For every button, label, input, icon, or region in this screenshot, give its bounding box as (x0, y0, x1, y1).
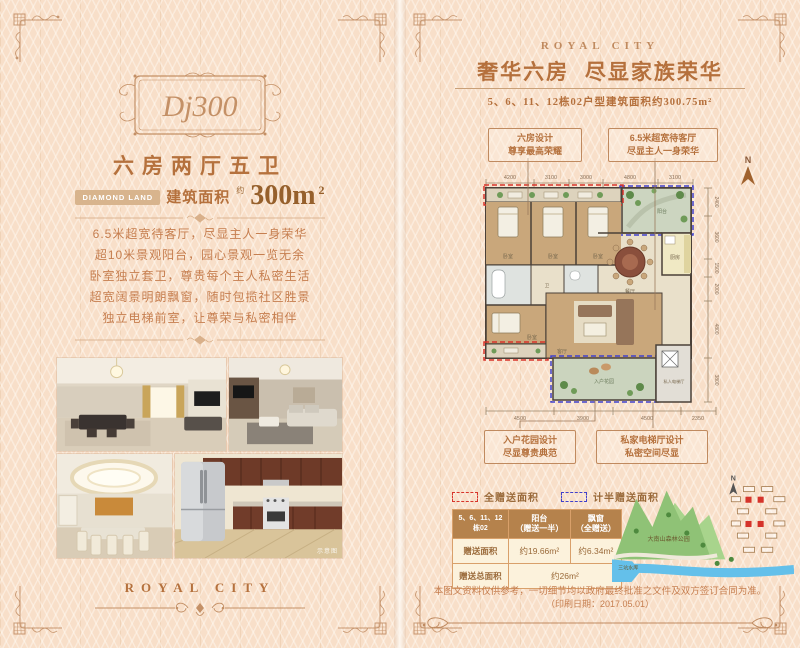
svg-text:2350: 2350 (692, 416, 704, 422)
kitchen-illustration (175, 454, 342, 558)
dimension-labels-right: 2400 3600 1500 2000 4800 3800 (713, 196, 719, 385)
brand-badge: DIAMOND LAND (75, 190, 160, 205)
svg-text:1500: 1500 (713, 262, 719, 273)
feature-line: 卧室独立套卫，尊贵每个主人私密生活 (0, 270, 400, 282)
callout-private-elevator: 私家电梯厅设计 私密空间尽显 (596, 430, 708, 464)
area-row: DIAMOND LAND 建筑面积 约 300m 2 (0, 182, 400, 210)
footer-brand: ROYAL CITY (0, 580, 400, 596)
feature-line: 超10米景观阳台，园心景观一览无余 (0, 249, 400, 261)
area-superscript: 2 (319, 183, 325, 198)
svg-text:2400: 2400 (713, 196, 719, 207)
svg-text:3800: 3800 (713, 374, 719, 385)
area-value: 300m (250, 182, 315, 210)
svg-text:4800: 4800 (624, 175, 636, 181)
map-park-label: 大南山森林公园 (647, 535, 689, 543)
blue-dashed-swatch (561, 492, 587, 502)
page-title: 六房两厅五卫 (0, 150, 400, 180)
red-dashed-swatch (452, 492, 478, 502)
feature-list: 6.5米超宽待客厅，尽显主人一身荣华 超10米景观阳台，园心景观一览无余 卧室独… (0, 228, 400, 333)
divider-ornament-icon (75, 333, 325, 347)
room-label-kitchen: 厨房 (670, 254, 680, 261)
title-rule (455, 88, 745, 89)
disclaimer: 本图文资料仅供参考，一切细节均以政府最终批准之文件及双方签订合同为准。 （印刷日… (400, 585, 800, 611)
divider-ornament-icon (75, 211, 325, 225)
callout-line: 私密空间尽显 (601, 447, 703, 460)
header-brand: ROYAL CITY (400, 40, 800, 52)
area-label: 建筑面积 (166, 186, 230, 207)
svg-text:N: N (745, 155, 752, 165)
map-north-arrow-icon: N (729, 476, 737, 495)
svg-text:2000: 2000 (713, 283, 719, 294)
table-header-unit: 5、6、11、12栋02 (453, 510, 509, 539)
dimension-line-right (704, 188, 712, 402)
table-row: 赠送面积 约19.66m² 约6.34m² (453, 539, 622, 564)
dj300-logo: Dj300 (115, 68, 285, 142)
map-buildings (731, 487, 785, 553)
legend-item-full-gift: 全赠送面积 (452, 489, 539, 504)
map-lake-label: 三坑水库 (618, 564, 638, 571)
svg-text:4200: 4200 (504, 175, 516, 181)
photo-watermark: 示意图 (317, 546, 338, 555)
disclaimer-line: （印刷日期：2017.05.01） (400, 598, 800, 611)
approx-mark: 约 (236, 185, 244, 196)
disclaimer-line: 本图文资料仅供参考，一切细节均以政府最终批准之文件及双方签订合同为准。 (400, 585, 800, 598)
north-arrow-icon: N (741, 155, 755, 185)
page-fold (394, 0, 406, 648)
feature-line: 超宽阔景明朗飘窗，随时包揽社区胜景 (0, 291, 400, 303)
svg-text:3100: 3100 (669, 175, 681, 181)
photo-dining-room (57, 454, 172, 558)
svg-text:3100: 3100 (545, 175, 557, 181)
dining-room-illustration (57, 454, 172, 558)
corner-ornament-icon (8, 8, 64, 64)
callout-line: 6.5米超宽待客厅 (613, 132, 713, 145)
feature-line: 6.5米超宽待客厅，尽显主人一身荣华 (0, 228, 400, 240)
table-cell-value: 约19.66m² (508, 539, 570, 564)
table-header-balcony: 阳台 （赠送一半） (508, 510, 570, 539)
room-label-bedroom: 卧室 (527, 334, 537, 341)
living-room-illustration (229, 358, 342, 451)
brand-ornament-icon (95, 598, 305, 620)
photo-living-dining (57, 358, 226, 451)
table-cell-label: 赠送面积 (453, 539, 509, 564)
left-page: Dj300 六房两厅五卫 DIAMOND LAND 建筑面积 约 300m 2 … (0, 0, 400, 648)
callout-line: 尽显尊贵典范 (489, 447, 571, 460)
room-label-garden: 入户花园 (594, 378, 614, 385)
right-page: ROYAL CITY 奢华六房 尽显家族荣华 5、6、11、12栋02户型建筑面… (400, 0, 800, 648)
room-label-bedroom: 卧室 (548, 253, 558, 260)
logo-text: Dj300 (162, 90, 238, 123)
callout-entry-garden: 入户花园设计 尽显尊贵典范 (484, 430, 576, 464)
svg-text:3600: 3600 (713, 231, 719, 242)
svg-text:N: N (731, 476, 736, 483)
callout-line: 私家电梯厅设计 (601, 434, 703, 447)
callout-six-bedrooms: 六房设计 尊享最高荣耀 (488, 128, 582, 162)
subtitle: 5、6、11、12栋02户型建筑面积约300.75m² (400, 94, 800, 109)
floor-plan: 4200 3100 3000 4800 3100 阳台 (448, 115, 793, 480)
bottom-flourish-icon (418, 612, 782, 632)
dimension-line-bottom (486, 407, 716, 415)
photo-kitchen: 示意图 (175, 454, 342, 558)
callout-line: 尊享最高荣耀 (493, 145, 577, 158)
room-label-elevator: 私人电梯厅 (664, 378, 685, 385)
callout-line: 入户花园设计 (489, 434, 571, 447)
location-map: 大南山森林公园 三坑水库 N (612, 470, 794, 582)
room-label-terrace: 阳台 (657, 208, 667, 215)
feature-line: 独立电梯前室，让尊荣与私密相伴 (0, 312, 400, 324)
svg-text:4500: 4500 (641, 416, 653, 422)
room-label-bedroom: 卧室 (503, 253, 513, 260)
page-title: 奢华六房 尽显家族荣华 (400, 56, 800, 86)
room-label-bath: 卫 (545, 283, 550, 288)
callout-line: 尽显主人一身荣华 (613, 145, 713, 158)
callout-wide-livingroom: 6.5米超宽待客厅 尽显主人一身荣华 (608, 128, 718, 162)
living-dining-illustration (57, 358, 226, 451)
dimension-labels-top: 4200 3100 3000 4800 3100 (504, 175, 681, 181)
legend-label: 全赠送面积 (484, 489, 539, 504)
gift-area-table: 5、6、11、12栋02 阳台 （赠送一半） 飘窗 （全赠送） 赠送面积 约19… (452, 509, 622, 589)
svg-text:3000: 3000 (580, 175, 592, 181)
room-label-living: 客厅 (557, 348, 567, 355)
svg-text:4800: 4800 (713, 323, 719, 334)
callout-line: 六房设计 (493, 132, 577, 145)
photo-living-room (229, 358, 342, 451)
brochure-spread: Dj300 六房两厅五卫 DIAMOND LAND 建筑面积 约 300m 2 … (0, 0, 800, 648)
corner-ornament-icon (336, 8, 392, 64)
room-label-bedroom: 卧室 (593, 253, 603, 260)
